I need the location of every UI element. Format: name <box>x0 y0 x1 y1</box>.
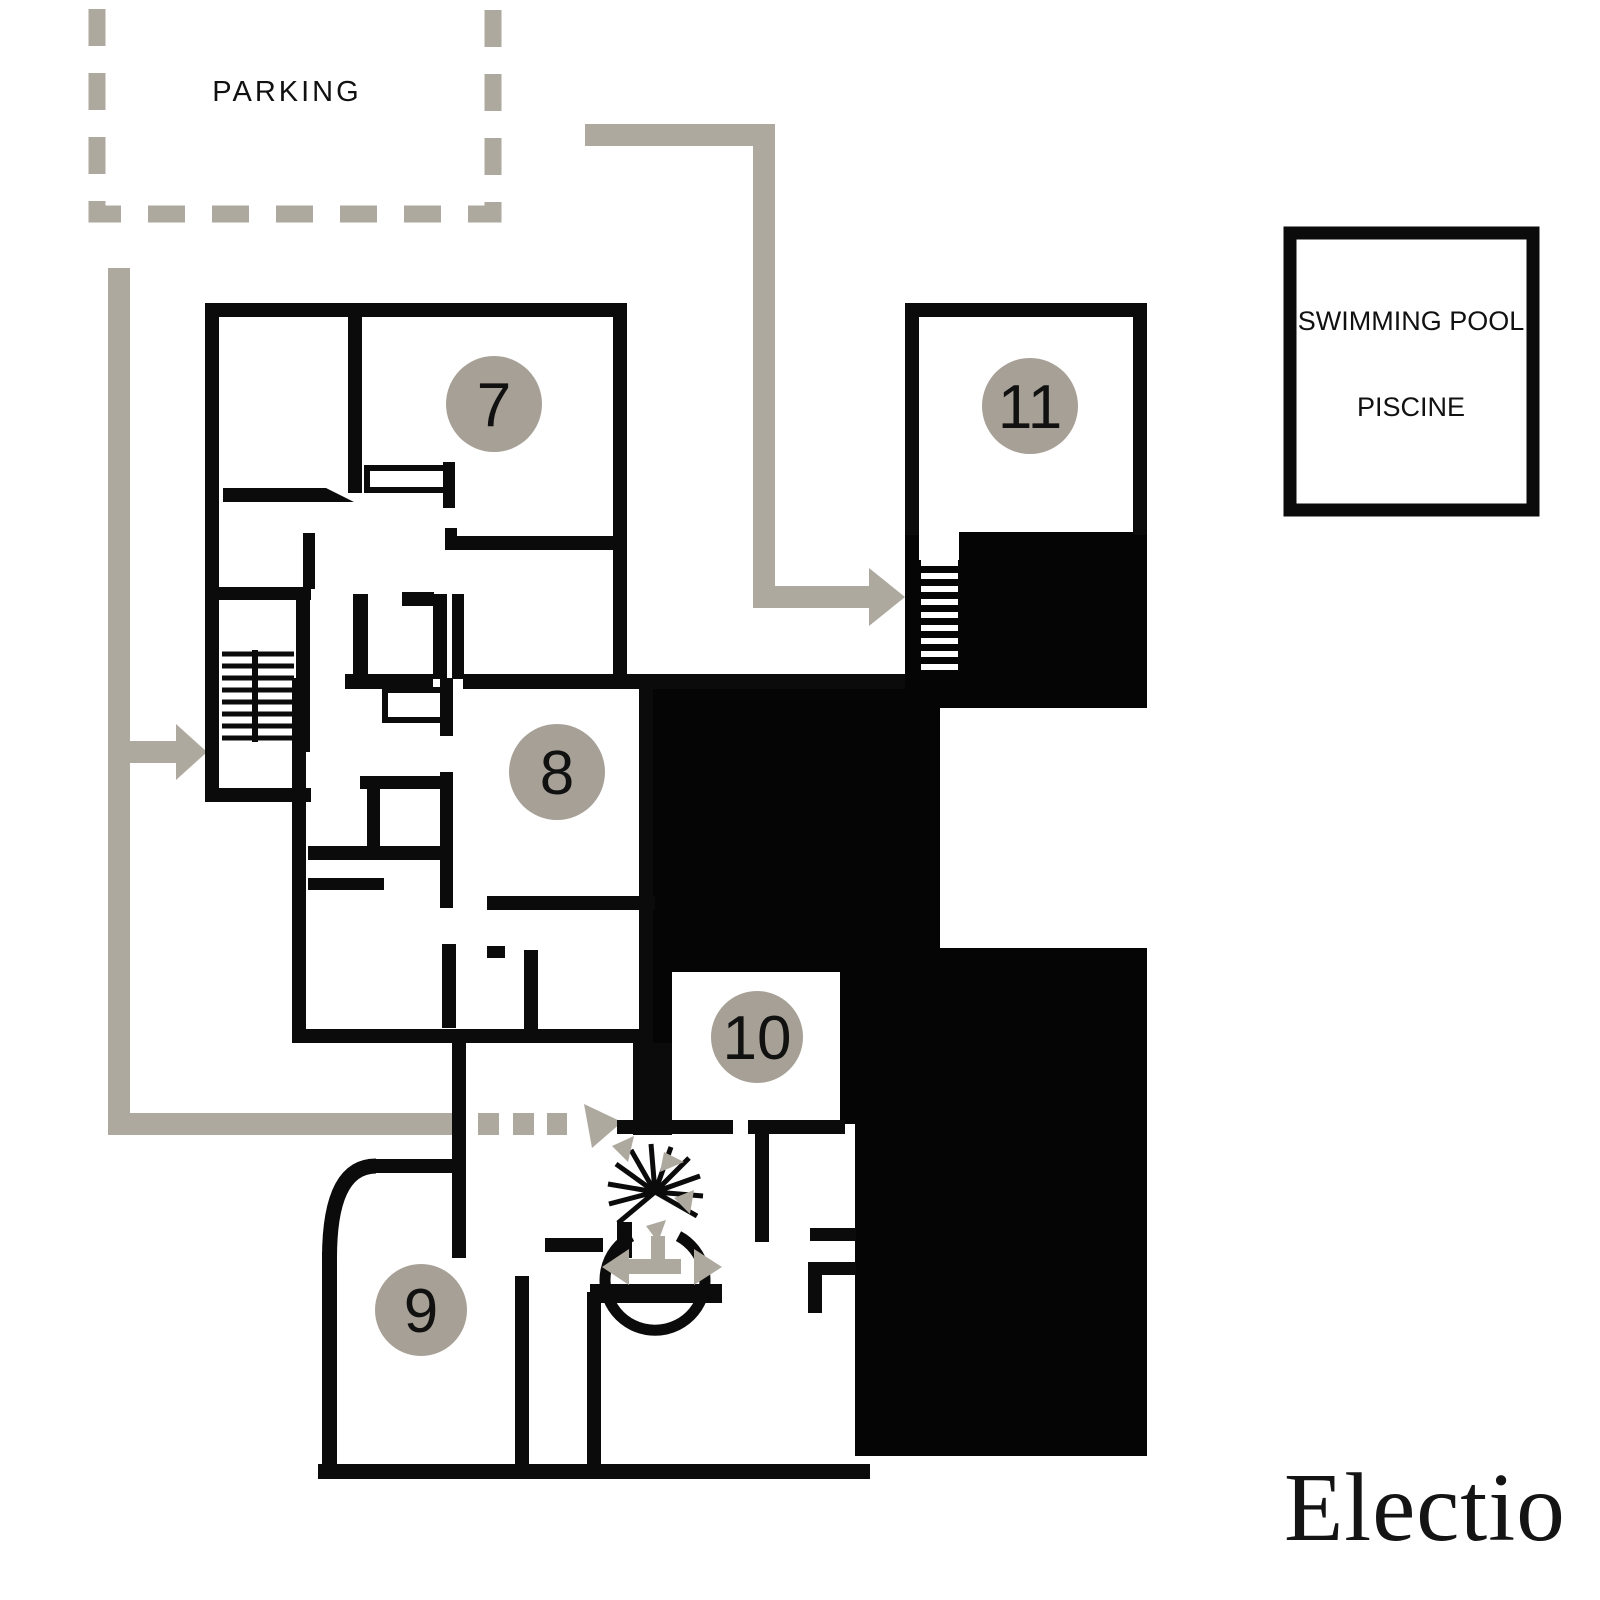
unit-number-11: 11 <box>998 373 1062 442</box>
arrow-into-stairs11-icon <box>869 568 905 626</box>
parking-label: PARKING <box>212 76 361 108</box>
unit-number-9: 9 <box>404 1277 438 1346</box>
floor-plan-drawing: 7 8 9 10 11 PARKING SWIMMING POOL PISCIN… <box>0 0 1600 1600</box>
route-top-horizontal <box>585 124 775 146</box>
swimming-pool-box: SWIMMING POOL PISCINE <box>1290 233 1533 510</box>
route-top-run <box>753 586 869 608</box>
core-bottom-right <box>855 1122 1147 1456</box>
unit-number-8: 8 <box>540 739 574 808</box>
core-right-band <box>840 948 1147 1124</box>
floor-plan-page: 7 8 9 10 11 PARKING SWIMMING POOL PISCIN… <box>0 0 1600 1600</box>
arrow-into-stairwell-icon <box>176 724 207 780</box>
route-bottom-band <box>108 1113 462 1135</box>
route-left-branch <box>130 741 176 763</box>
route-top-vertical <box>753 124 775 606</box>
building-block-unit8 <box>292 678 655 1043</box>
unit-number-10: 10 <box>723 1004 792 1073</box>
brand-logo: Electio <box>1284 1454 1566 1561</box>
unit-number-7: 7 <box>477 371 511 440</box>
arrowhead-to-spiral-icon <box>584 1104 622 1148</box>
pool-label-fr: PISCINE <box>1357 392 1465 422</box>
route-left-vertical <box>108 268 130 1135</box>
pool-label-en: SWIMMING POOL <box>1298 306 1525 336</box>
